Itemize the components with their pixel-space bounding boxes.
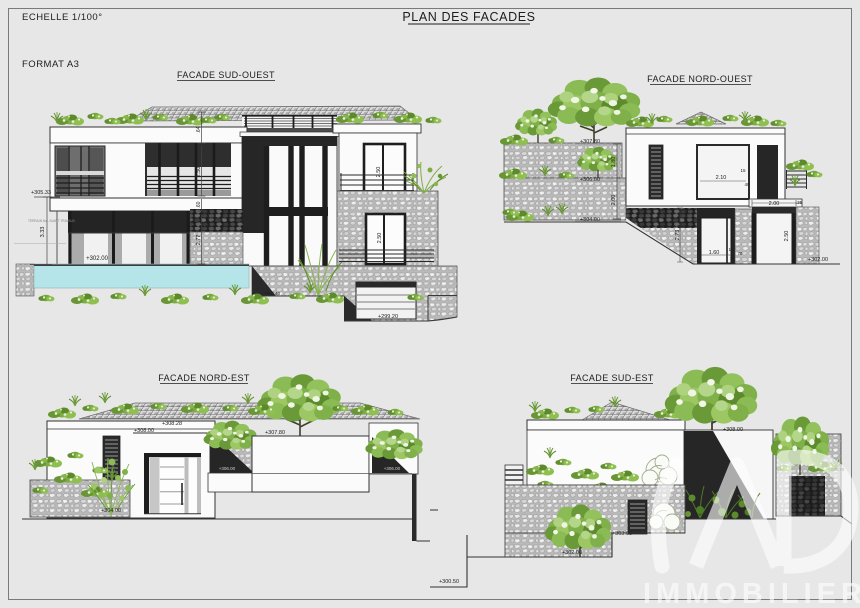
svg-text:+299.20: +299.20 xyxy=(378,314,398,320)
svg-text:70: 70 xyxy=(738,251,743,256)
svg-text:ECHELLE 1/100°: ECHELLE 1/100° xyxy=(22,12,103,23)
svg-text:1.80: 1.80 xyxy=(611,157,617,168)
svg-text:2.00: 2.00 xyxy=(611,195,617,206)
svg-text:2.77: 2.77 xyxy=(196,235,202,246)
svg-text:+302.00: +302.00 xyxy=(808,257,828,263)
svg-text:2.50: 2.50 xyxy=(376,167,382,178)
svg-text:2.50: 2.50 xyxy=(784,231,790,242)
svg-text:+302.00: +302.00 xyxy=(86,256,109,262)
svg-text:3.33: 3.33 xyxy=(40,227,46,238)
svg-text:2.50: 2.50 xyxy=(196,167,202,178)
svg-text:+302.00: +302.00 xyxy=(562,550,582,556)
svg-text:+300.40: +300.40 xyxy=(264,291,281,296)
svg-text:.64: .64 xyxy=(196,126,202,133)
svg-text:FACADE NORD-OUEST: FACADE NORD-OUEST xyxy=(647,74,753,84)
svg-text:.60: .60 xyxy=(196,201,202,208)
svg-text:.35: .35 xyxy=(796,200,803,205)
svg-text:+306.00: +306.00 xyxy=(580,177,600,183)
svg-text:+307.80: +307.80 xyxy=(265,430,285,436)
svg-text:FORMAT A3: FORMAT A3 xyxy=(22,59,79,70)
svg-text:FACADE SUD-EST: FACADE SUD-EST xyxy=(570,373,654,383)
svg-text:+304.00: +304.00 xyxy=(101,508,121,514)
svg-text:+308.28: +308.28 xyxy=(162,421,182,427)
svg-text:18: 18 xyxy=(730,256,735,261)
svg-text:TERRAIN Nat. AVANT TRAVAUX: TERRAIN Nat. AVANT TRAVAUX xyxy=(28,219,76,223)
svg-text:40: 40 xyxy=(744,182,750,187)
svg-text:PLAN DES FACADES: PLAN DES FACADES xyxy=(402,10,535,24)
svg-text:+303.00: +303.00 xyxy=(612,531,632,537)
svg-text:+305.33: +305.33 xyxy=(31,190,51,196)
svg-text:1.60: 1.60 xyxy=(709,250,720,256)
svg-text:FACADE SUD-OUEST: FACADE SUD-OUEST xyxy=(177,70,275,80)
svg-text:15: 15 xyxy=(740,168,746,173)
svg-text:2.10: 2.10 xyxy=(716,175,727,181)
svg-text:IMMOBILIER: IMMOBILIER xyxy=(643,578,860,608)
svg-text:2.73: 2.73 xyxy=(675,230,681,241)
svg-text:+306.00: +306.00 xyxy=(384,466,401,471)
svg-text:+300.50: +300.50 xyxy=(439,579,459,585)
svg-text:+308.00: +308.00 xyxy=(723,427,743,433)
svg-text:FACADE NORD-EST: FACADE NORD-EST xyxy=(158,373,250,383)
svg-text:2.50: 2.50 xyxy=(377,233,383,244)
svg-text:2.00: 2.00 xyxy=(769,201,780,207)
svg-text:17: 17 xyxy=(729,247,734,252)
svg-text:+306.00: +306.00 xyxy=(219,466,236,471)
